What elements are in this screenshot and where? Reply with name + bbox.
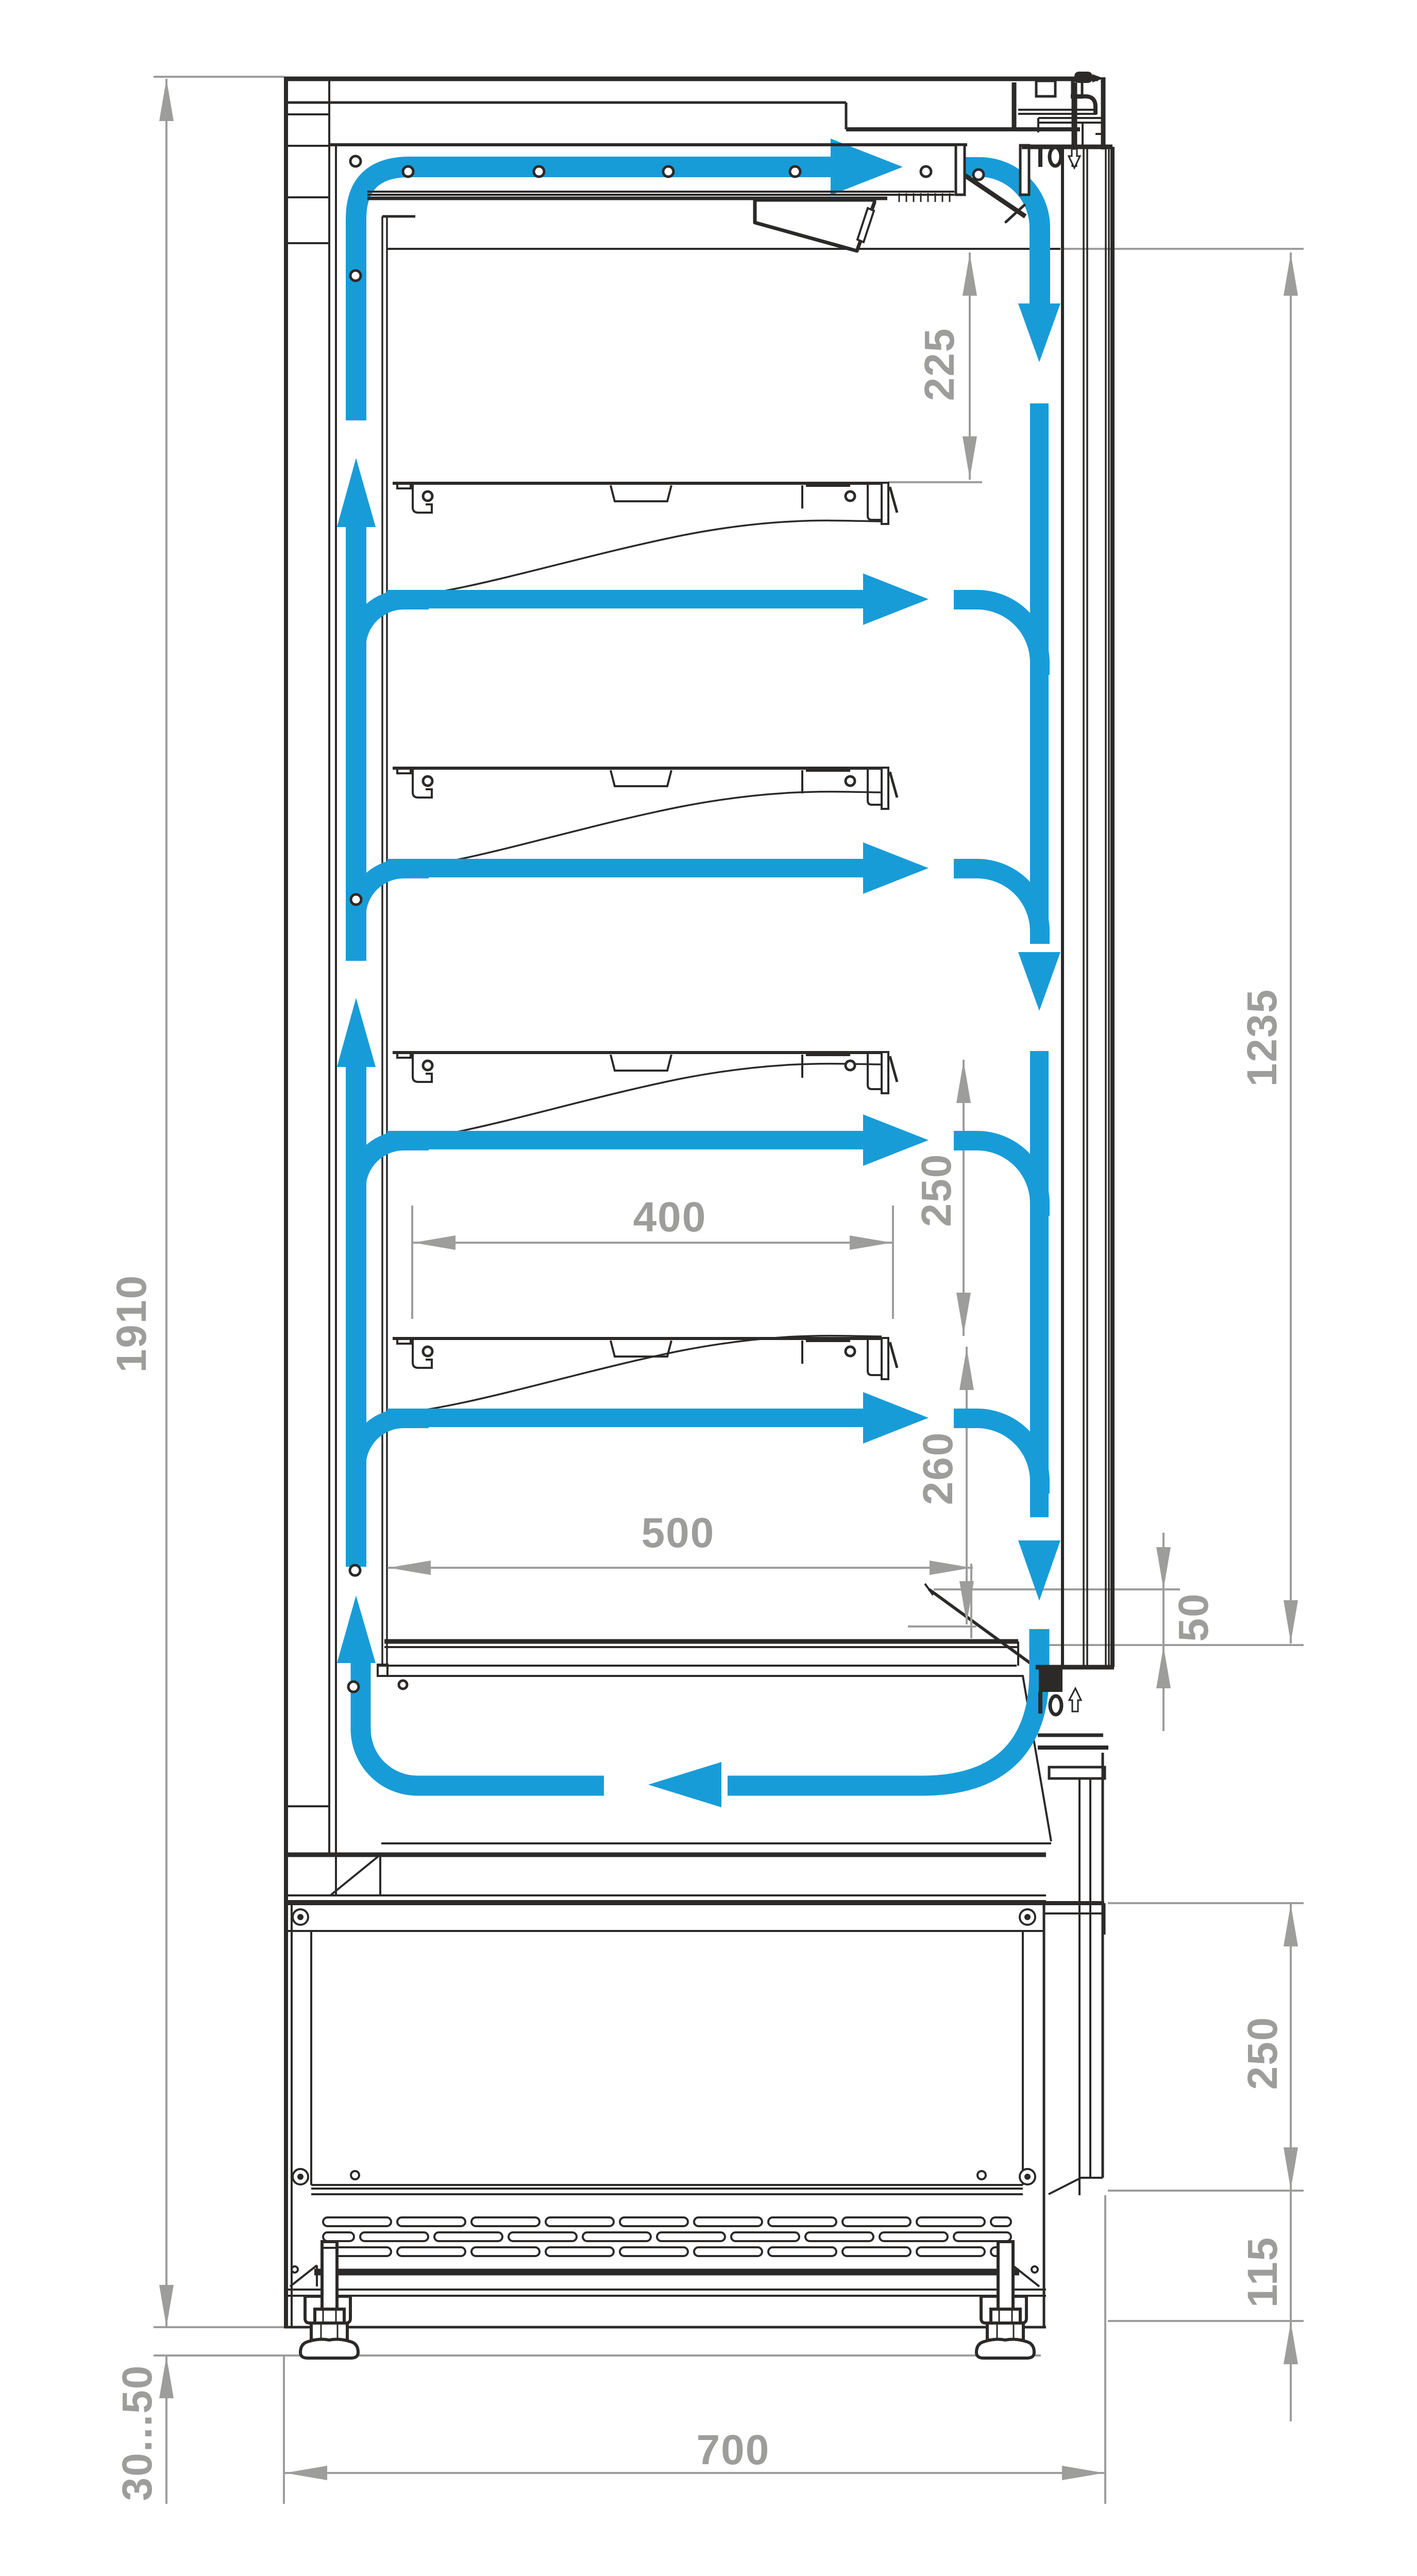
- svg-text:1235: 1235: [1239, 989, 1286, 1087]
- svg-text:1910: 1910: [108, 1275, 155, 1372]
- svg-text:500: 500: [642, 1510, 715, 1556]
- svg-text:400: 400: [633, 1194, 707, 1241]
- svg-text:260: 260: [915, 1432, 961, 1505]
- svg-text:30...50: 30...50: [114, 2365, 161, 2501]
- svg-text:700: 700: [697, 2427, 770, 2473]
- svg-text:225: 225: [916, 328, 963, 401]
- svg-text:250: 250: [913, 1154, 960, 1227]
- svg-text:50: 50: [1170, 1592, 1217, 1641]
- svg-text:250: 250: [1239, 2016, 1286, 2090]
- svg-text:115: 115: [1239, 2236, 1286, 2308]
